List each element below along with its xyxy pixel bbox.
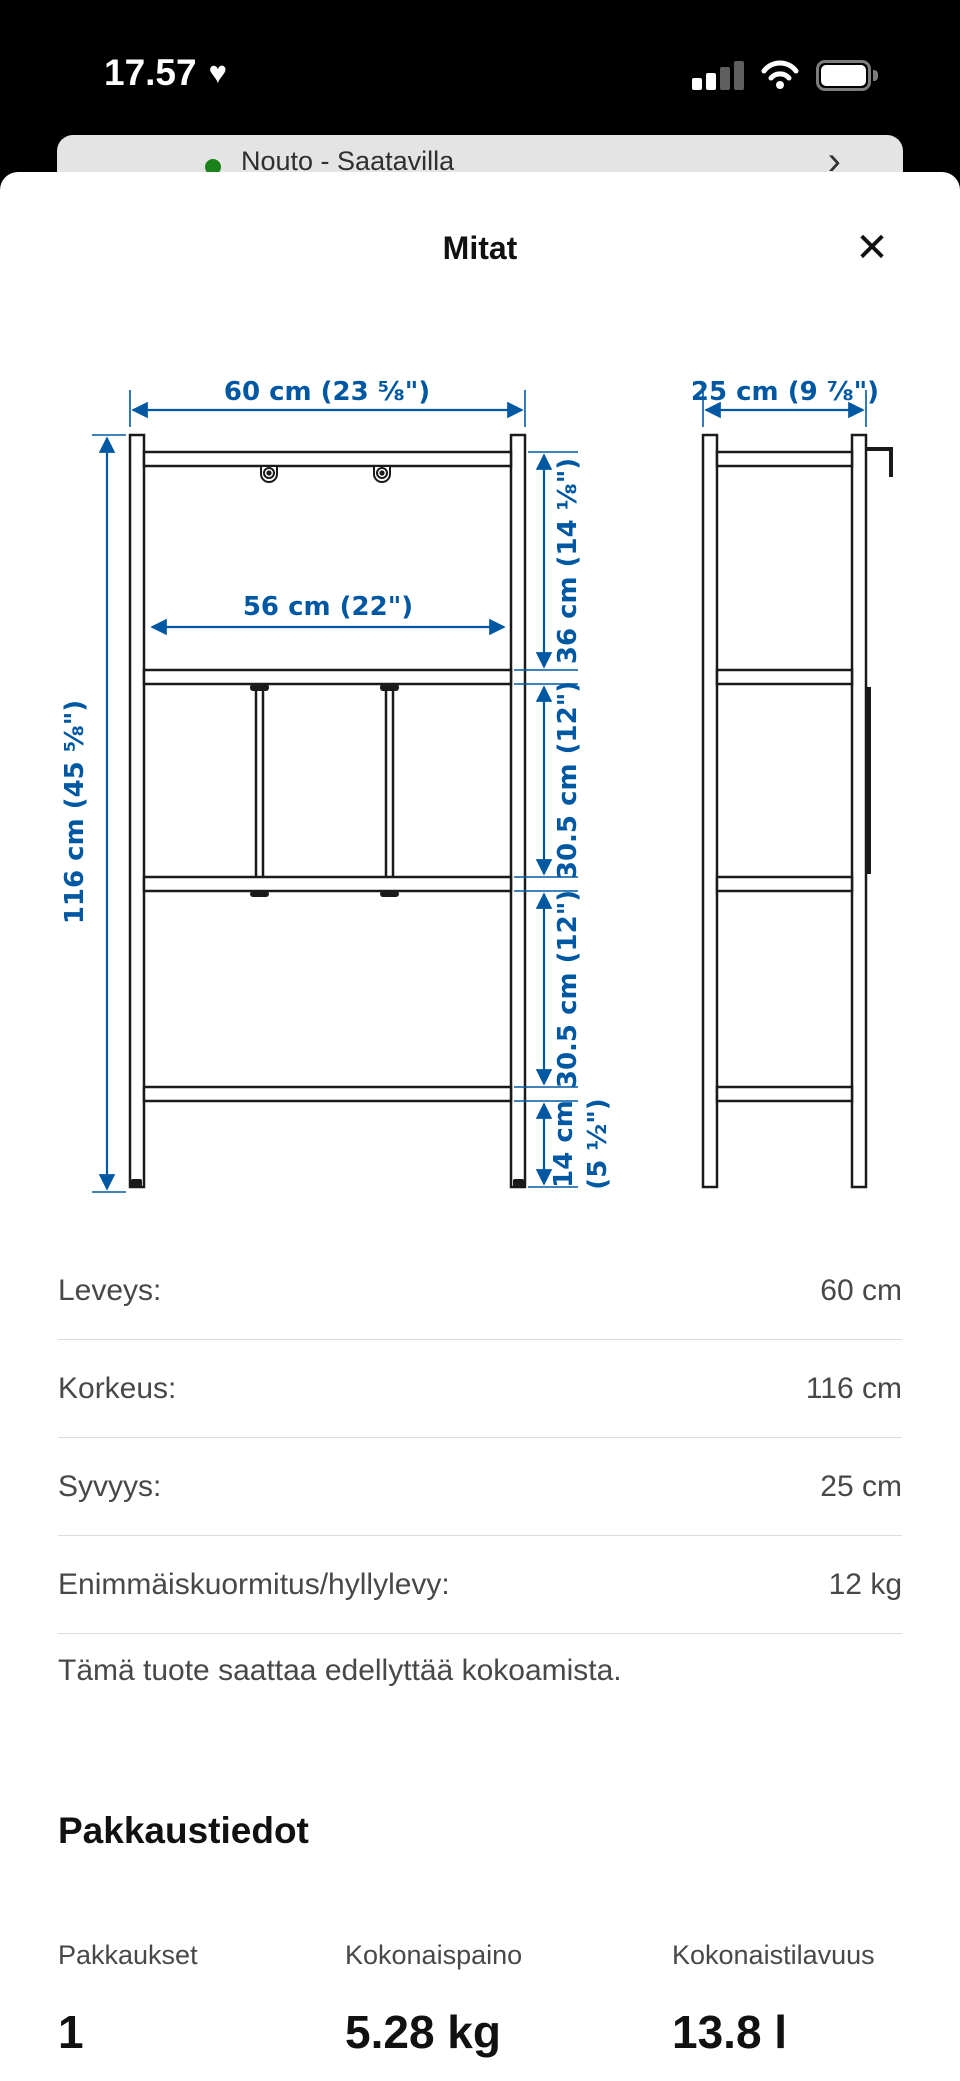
package-col-value: 5.28 kg	[345, 2005, 672, 2059]
close-button[interactable]: ✕	[842, 218, 902, 278]
side-top-rail	[717, 452, 852, 466]
extension-lines	[92, 390, 866, 1192]
front-left-leg	[130, 435, 144, 1187]
status-time: 17.57	[104, 52, 197, 94]
inner-width-label: 56 cm (22")	[243, 592, 413, 622]
front-shelf-1	[144, 670, 511, 684]
spec-value: 116 cm	[806, 1372, 902, 1406]
modal-header: Mitat ✕	[0, 172, 960, 322]
status-icons	[692, 58, 878, 92]
spec-row-width: Leveys: 60 cm	[58, 1242, 902, 1340]
middle-section-label: 30.5 cm (12")	[553, 681, 583, 879]
battery-icon	[816, 60, 878, 91]
side-rail-1	[717, 670, 852, 684]
side-view	[703, 435, 866, 1187]
spec-value: 60 cm	[820, 1274, 902, 1308]
mount-brackets	[261, 466, 390, 482]
front-right-leg	[511, 435, 525, 1187]
package-col-label: Kokonaistilavuus	[672, 1940, 930, 1971]
package-info-heading: Pakkaustiedot	[58, 1810, 309, 1852]
spec-value: 25 cm	[820, 1470, 902, 1504]
front-shelf-2	[144, 877, 511, 891]
spec-list: Leveys: 60 cm Korkeus: 116 cm Syvyys: 25…	[58, 1242, 902, 1634]
spec-label: Enimmäiskuormitus/hyllylevy:	[58, 1568, 450, 1602]
package-col-value: 1	[58, 2005, 345, 2059]
wall-anchor-hook	[866, 449, 891, 477]
side-right-leg	[852, 435, 866, 1187]
side-rail-2	[717, 877, 852, 891]
spec-row-depth: Syvyys: 25 cm	[58, 1438, 902, 1536]
spec-value: 12 kg	[829, 1568, 902, 1602]
side-rail-3	[717, 1087, 852, 1101]
status-time-group: 17.57 ♥	[104, 52, 227, 94]
package-col-label: Pakkaukset	[58, 1940, 345, 1971]
side-depth-label: 25 cm (9 ⅞")	[691, 377, 879, 407]
spec-label: Leveys:	[58, 1274, 161, 1308]
dimensions-drawing: 60 cm (23 ⅝") 25 cm (9 ⅞") 56 cm (22") 1…	[0, 372, 960, 1212]
dimensions-modal: Mitat ✕	[0, 172, 960, 2081]
side-left-leg	[703, 435, 717, 1187]
package-col-packages: Pakkaukset 1	[58, 1940, 345, 2059]
heart-icon: ♥	[209, 55, 227, 91]
close-icon: ✕	[855, 226, 889, 270]
spec-row-height: Korkeus: 116 cm	[58, 1340, 902, 1438]
divider-clips	[250, 684, 399, 897]
wifi-icon	[760, 60, 800, 90]
spec-row-max-load: Enimmäiskuormitus/hyllylevy: 12 kg	[58, 1536, 902, 1634]
top-section-label: 36 cm (14 ⅛")	[553, 458, 583, 664]
front-shelf-3	[144, 1087, 511, 1101]
front-view	[130, 435, 525, 1187]
bottom-section-label-2: (5 ½")	[583, 1098, 613, 1189]
feet	[131, 1179, 865, 1187]
bottom-section-label-1: 14 cm	[549, 1100, 579, 1188]
side-bracket-bar	[866, 687, 871, 874]
height-label: 116 cm (45 ⅝")	[60, 700, 90, 924]
status-bar: 17.57 ♥	[0, 0, 960, 135]
package-col-volume: Kokonaistilavuus 13.8 l	[672, 1940, 930, 2059]
modal-title: Mitat	[0, 230, 960, 267]
package-info-grid: Pakkaukset 1 Kokonaispaino 5.28 kg Kokon…	[58, 1940, 930, 2059]
cellular-signal-icon	[692, 58, 744, 92]
package-col-label: Kokonaispaino	[345, 1940, 672, 1971]
lower-section-label: 30.5 cm (12")	[553, 890, 583, 1088]
screen: 17.57 ♥ Nouto - Saatavilla	[0, 0, 960, 2081]
battery-fill	[821, 65, 866, 86]
package-col-weight: Kokonaispaino 5.28 kg	[345, 1940, 672, 2059]
package-col-value: 13.8 l	[672, 2005, 930, 2059]
battery-nub	[873, 70, 878, 81]
spec-label: Syvyys:	[58, 1470, 161, 1504]
spec-label: Korkeus:	[58, 1372, 176, 1406]
assembly-note: Tämä tuote saattaa edellyttää kokoamista…	[58, 1654, 902, 1688]
dimension-arrows	[107, 410, 863, 1189]
front-top-rail	[144, 452, 511, 466]
front-width-label: 60 cm (23 ⅝")	[224, 377, 430, 407]
